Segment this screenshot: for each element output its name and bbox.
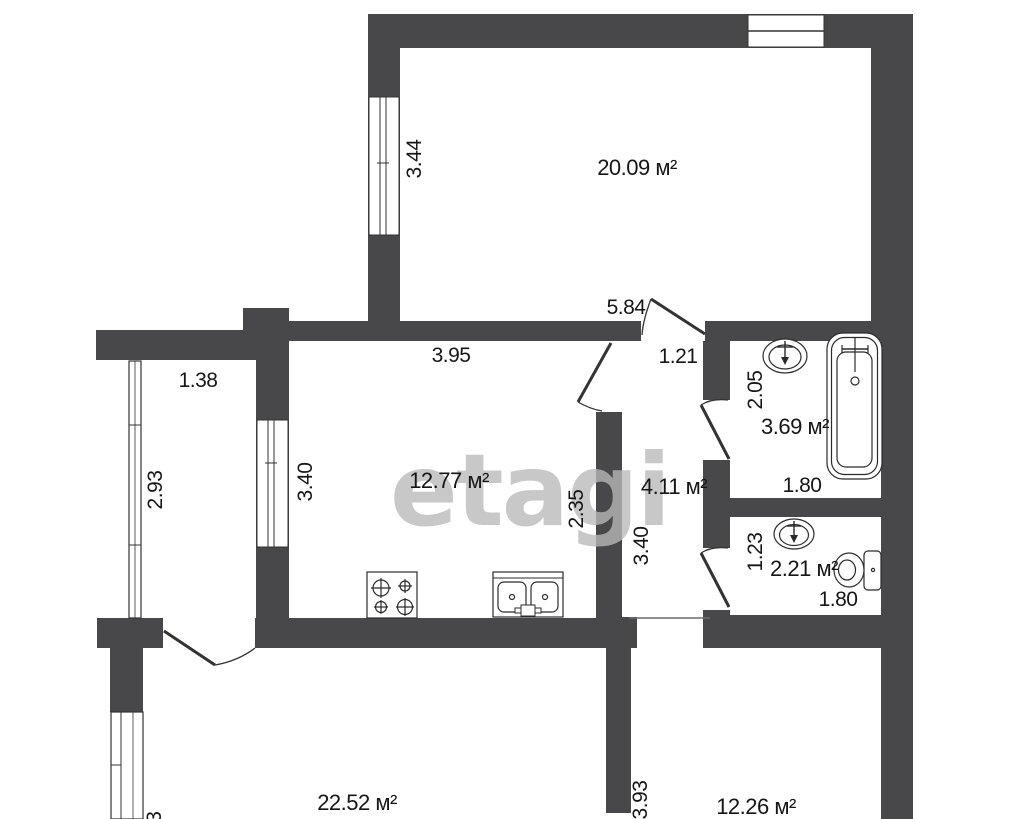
toilet-area-label: 2.21 м²: [770, 556, 838, 582]
window-kitchen-left: [257, 420, 288, 547]
kitchen-sink-icon: [493, 572, 563, 617]
bath-sink-icon: [763, 339, 807, 373]
bathtub-icon: [827, 333, 882, 479]
bath-area-label: 3.69 м²: [761, 414, 829, 440]
living-window-dim: 3.44: [403, 140, 427, 179]
window-living-top: [748, 15, 824, 47]
window-bottom-left-glazing: [111, 712, 143, 819]
living-area-label: 20.09 м²: [597, 155, 677, 181]
bath-bottom-dim: 1.80: [783, 474, 822, 498]
balcony-top-dim: 1.38: [179, 369, 218, 393]
floor-plan: etagi 20.09 м² 3.44 5.84 3.95 3.40 12.77…: [0, 0, 1024, 819]
window-living-left: [369, 97, 399, 235]
toilet-icon: [834, 551, 881, 590]
stove-icon: [367, 572, 417, 618]
door-kitchen: [578, 343, 611, 411]
kitchen-left-dim: 3.40: [294, 463, 318, 502]
toilet-sink-icon: [774, 519, 814, 549]
door-bathroom: [701, 400, 729, 459]
kitchen-area-label: 12.77 м²: [409, 468, 489, 494]
window-balcony-glazing: [129, 361, 141, 618]
bath-left-dim: 2.05: [744, 371, 768, 410]
room1-right-dim: 3.93: [629, 781, 653, 819]
room1-area-label: 22.52 м²: [317, 790, 397, 816]
balcony-left-dim: 2.93: [144, 471, 168, 510]
room2-area-label: 12.26 м²: [716, 794, 796, 819]
door-balcony: [164, 631, 255, 665]
kitchen-right-dim: 2.35: [565, 490, 589, 529]
hall-left-dim: 3.40: [630, 527, 654, 566]
room1-left-dim: 2.93: [143, 812, 167, 819]
kitchen-top-dim: 3.95: [432, 344, 471, 368]
door-toilet: [701, 548, 729, 607]
hall-top-dim: 1.21: [659, 345, 698, 369]
door-living: [642, 299, 705, 335]
toilet-left-dim: 1.23: [744, 533, 768, 572]
living-door-dim: 5.84: [607, 296, 646, 320]
hall-area-label: 4.11 м²: [641, 474, 707, 500]
toilet-bottom-dim: 1.80: [819, 588, 858, 612]
